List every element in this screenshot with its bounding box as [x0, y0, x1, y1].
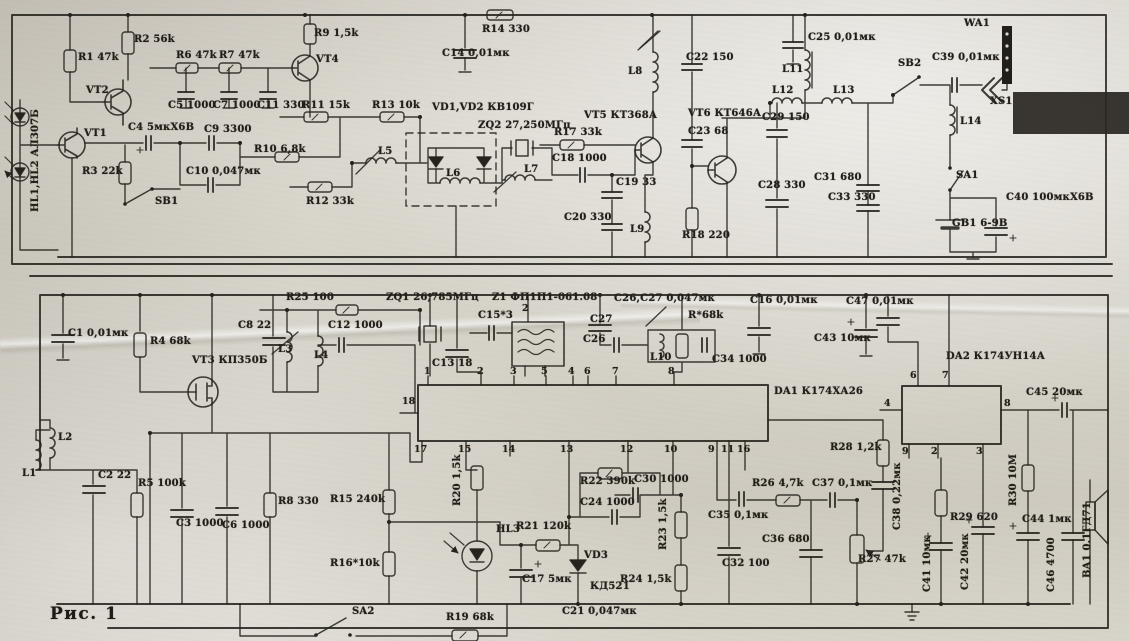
- label-c39-0,01мк: C39 0,01мк: [932, 52, 1000, 63]
- label-l6: L6: [446, 168, 460, 179]
- pin-8-22: 8: [1004, 398, 1011, 409]
- pin-7-7: 7: [612, 366, 619, 377]
- label-c4-5мкх6в: C4 5мкХ6В: [128, 122, 194, 133]
- label-zq1-26,785мгц: ZQ1 26,785МГц: [386, 292, 479, 303]
- pin-15-10: 15: [458, 444, 471, 455]
- label-c20-330: C20 330: [564, 212, 612, 223]
- label-vt1: VT1: [84, 128, 107, 139]
- pin-17-9: 17: [414, 444, 427, 455]
- label-xs1: XS1: [990, 96, 1013, 107]
- label-c5-1000: C5 1000: [168, 100, 216, 111]
- label-z1-фп1п1-061.08: Z1 ФП1П1-061.08: [492, 292, 597, 303]
- label-l13: L13: [833, 85, 855, 96]
- label-c19-33: C19 33: [616, 177, 656, 188]
- pin-2-18: 2: [522, 303, 529, 314]
- label-c6-1000: C6 1000: [222, 520, 270, 531]
- label-c34-1000: C34 1000: [712, 354, 767, 365]
- label-c15*3: C15*3: [478, 310, 513, 321]
- label-r5-100k: R5 100k: [138, 478, 186, 489]
- label-c7-1000: C7 1000: [213, 100, 261, 111]
- pin-18-0: 18: [402, 396, 415, 407]
- label-c35-0,1мк: C35 0,1мк: [708, 510, 768, 521]
- label-c25-0,01мк: C25 0,01мк: [808, 32, 876, 43]
- label-c10-0,047мк: C10 0,047мк: [186, 166, 261, 177]
- label-r30-10м: R30 10М: [1008, 454, 1019, 506]
- label-c11-330: C11 330: [257, 100, 305, 111]
- label-l9: L9: [630, 224, 644, 235]
- label-sa2: SA2: [352, 606, 375, 617]
- label-c30-1000: C30 1000: [634, 474, 689, 485]
- label-r26-4,7k: R26 4,7k: [752, 478, 804, 489]
- label-l3: L3: [278, 344, 292, 355]
- pin-6-19: 6: [910, 370, 917, 381]
- label-r15-240k: R15 240k: [330, 494, 385, 505]
- label-r20-1,5k: R20 1,5k: [452, 454, 463, 506]
- pin-2-24: 2: [931, 446, 938, 457]
- label-r10-6,8k: R10 6,8k: [254, 144, 306, 155]
- label-sb1: SB1: [155, 196, 178, 207]
- pin-3-3: 3: [510, 366, 517, 377]
- component-labels-layer: HL1,HL2 АЛ307БR1 47kR2 56kVT2VT1R3 22kC4…: [0, 0, 1129, 641]
- label-da2-к174ун14а: DA2 К174УН14А: [946, 351, 1045, 362]
- label-c1-0,01мк: C1 0,01мк: [68, 328, 128, 339]
- label-gb1-6-9в: GB1 6-9В: [952, 218, 1008, 229]
- label-r27-47k: R27 47k: [858, 554, 906, 565]
- label-r19-68k: R19 68k: [446, 612, 494, 623]
- label-c24-1000: C24 1000: [580, 497, 635, 508]
- label-r8-330: R8 330: [278, 496, 319, 507]
- label-l4: L4: [314, 350, 328, 361]
- label-c21-0,047мк: C21 0,047мк: [562, 606, 637, 617]
- label-da1-к174ха26: DA1 К174ХА26: [774, 386, 863, 397]
- pin-14-11: 14: [502, 444, 515, 455]
- label-c17-5мк: C17 5мк: [522, 574, 572, 585]
- label-l12: L12: [772, 85, 794, 96]
- pin-6-6: 6: [584, 366, 591, 377]
- label-c42-20мк: C42 20мк: [960, 533, 971, 590]
- label-c33-330: C33 330: [828, 192, 876, 203]
- label-c8-22: C8 22: [238, 320, 271, 331]
- label-c28-330: C28 330: [758, 180, 806, 191]
- pin-1-1: 1: [424, 366, 431, 377]
- label-c29-150: C29 150: [762, 112, 810, 123]
- label-c23-68: C23 68: [688, 126, 728, 137]
- label-r12-33k: R12 33k: [306, 196, 354, 207]
- label-r7-47k: R7 47k: [219, 50, 260, 61]
- label-l10: L10: [650, 352, 672, 363]
- label-c14-0,01мк: C14 0,01мк: [442, 48, 510, 59]
- label-vt6-кт646а: VT6 КТ646А: [688, 108, 761, 119]
- label-r14-330: R14 330: [482, 24, 530, 35]
- pin-4-5: 4: [568, 366, 575, 377]
- label-c12-1000: C12 1000: [328, 320, 383, 331]
- schematic-page: HL1,HL2 АЛ307БR1 47kR2 56kVT2VT1R3 22kC4…: [0, 0, 1129, 641]
- label-c44-1мк: C44 1мк: [1022, 514, 1072, 525]
- pin-16-17: 16: [737, 444, 750, 455]
- label-vt2: VT2: [86, 85, 109, 96]
- label-c3-1000: C3 1000: [176, 518, 224, 529]
- label-l5: L5: [378, 146, 392, 157]
- pin-9-15: 9: [708, 444, 715, 455]
- label-c43-10мк: C43 10мк: [814, 333, 871, 344]
- label-c37-0,1мк: C37 0,1мк: [812, 478, 872, 489]
- pin-11-16: 11: [721, 444, 734, 455]
- pin-13-12: 13: [560, 444, 573, 455]
- label-hl1,hl2-ал307б: HL1,HL2 АЛ307Б: [30, 109, 41, 212]
- label-c32-100: C32 100: [722, 558, 770, 569]
- label-r4-68k: R4 68k: [150, 336, 191, 347]
- label-c45-20мк: C45 20мк: [1026, 387, 1083, 398]
- pin-5-4: 5: [541, 366, 548, 377]
- label-c26,c27-0,047мк: C26,C27 0,047мк: [614, 293, 715, 304]
- label-r1-47k: R1 47k: [78, 52, 119, 63]
- label-r28-1,2k: R28 1,2k: [830, 442, 882, 453]
- label-vd1,vd2-кв109г: VD1,VD2 КВ109Г: [432, 102, 534, 113]
- label-c41-10мк: C41 10мк: [922, 535, 933, 592]
- pin-8-8: 8: [668, 366, 675, 377]
- label-l1: L1: [22, 468, 36, 479]
- label-vt4: VT4: [316, 54, 339, 65]
- label-r29-620: R29 620: [950, 512, 998, 523]
- label-c40-100мкх6в: C40 100мкХ6В: [1006, 192, 1094, 203]
- label-r21-120k: R21 120k: [516, 521, 571, 532]
- label-sb2: SB2: [898, 58, 921, 69]
- label-r3-22k: R3 22k: [82, 166, 123, 177]
- pin-12-13: 12: [620, 444, 633, 455]
- label-c36-680: C36 680: [762, 534, 810, 545]
- label-r6-47k: R6 47k: [176, 50, 217, 61]
- label-r11-15k: R11 15k: [302, 100, 350, 111]
- label-l14: L14: [960, 116, 982, 127]
- label-l8: L8: [628, 66, 642, 77]
- label-r18-220: R18 220: [682, 230, 730, 241]
- label-c47-0,01мк: C47 0,01мк: [846, 296, 914, 307]
- pin-7-20: 7: [942, 370, 949, 381]
- label-r17-33k: R17 33k: [554, 127, 602, 138]
- label-ba1-0.1гд71: BA1 0.1ГД71: [1082, 502, 1093, 578]
- pin-10-14: 10: [664, 444, 677, 455]
- label-c22-150: C22 150: [686, 52, 734, 63]
- label-vt5-кт368а: VT5 КТ368А: [584, 110, 657, 121]
- pin-4-21: 4: [884, 398, 891, 409]
- label-l7: L7: [524, 164, 538, 175]
- label-vd3: VD3: [584, 550, 608, 561]
- label-c18-1000: C18 1000: [552, 153, 607, 164]
- label-r*68k: R*68k: [688, 310, 723, 321]
- pin-9-23: 9: [902, 446, 909, 457]
- label-sa1: SA1: [956, 170, 979, 181]
- label-l11: L11: [782, 64, 804, 75]
- label-c46-4700: C46 4700: [1046, 537, 1057, 592]
- label-r16*10k: R16*10k: [330, 558, 380, 569]
- label-c31-680: C31 680: [814, 172, 862, 183]
- label-wa1: WA1: [964, 18, 990, 29]
- pin-2-2: 2: [477, 366, 484, 377]
- label-r13-10k: R13 10k: [372, 100, 420, 111]
- label-r9-1,5k: R9 1,5k: [314, 28, 358, 39]
- label-c26: C26: [583, 334, 605, 345]
- label-r24-1,5k: R24 1,5k: [620, 574, 672, 585]
- label-r25-100: R25 100: [286, 292, 334, 303]
- label-c2-22: C2 22: [98, 470, 131, 481]
- label-r23-1,5k: R23 1,5k: [658, 498, 669, 550]
- pin-3-25: 3: [976, 446, 983, 457]
- label-c27: C27: [590, 314, 612, 325]
- label-r2-56k: R2 56k: [134, 34, 175, 45]
- label-vt3-кп350б: VT3 КП350Б: [192, 355, 268, 366]
- figure-caption: Рис. 1: [50, 604, 118, 624]
- label-r22-390k: R22 390k: [580, 476, 635, 487]
- label-c38-0,22мк: C38 0,22мк: [892, 462, 903, 530]
- label-l2: L2: [58, 432, 72, 443]
- label-c9-3300: C9 3300: [204, 124, 252, 135]
- label-c13-18: C13 18: [432, 358, 472, 369]
- label-c16-0,01мк: C16 0,01мк: [750, 295, 818, 306]
